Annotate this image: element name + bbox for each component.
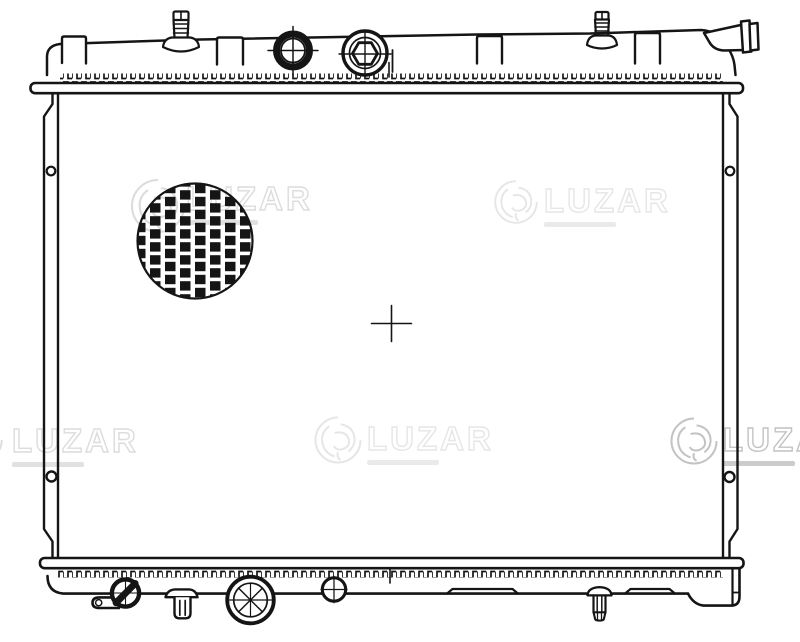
bleed-screw-left [163, 12, 199, 52]
top-header-plate [31, 83, 744, 93]
drain-plug [112, 579, 139, 606]
cross-boss [321, 576, 347, 602]
bracket-hole [47, 167, 56, 176]
fin-detail-circle [138, 184, 253, 299]
mounting-tab [635, 33, 660, 64]
bottom-header-plate [40, 558, 744, 568]
push-pin-fastener [166, 589, 198, 618]
bottom-tank [40, 558, 744, 623]
bracket-hole [47, 472, 57, 482]
mounting-tab [477, 36, 502, 64]
left-side-bracket [44, 93, 57, 558]
radiator-drawing-canvas: LUZAR LUZAR [0, 0, 800, 642]
bracket-hole [726, 167, 735, 176]
mounting-tab [62, 37, 86, 64]
core-face [58, 93, 723, 558]
pipe-collar [750, 23, 759, 51]
filler-cap [268, 27, 318, 75]
center-crosshair [372, 306, 412, 342]
radiator-technical-drawing [0, 0, 800, 642]
bleed-screw-right [587, 12, 617, 49]
machined-boss [227, 577, 274, 624]
top-tank [31, 12, 759, 94]
right-side-bracket [725, 93, 738, 558]
mounting-tab [217, 38, 243, 65]
mounting-pin [588, 587, 612, 621]
outlet-pipe [704, 21, 759, 53]
bracket-hole [725, 472, 735, 482]
